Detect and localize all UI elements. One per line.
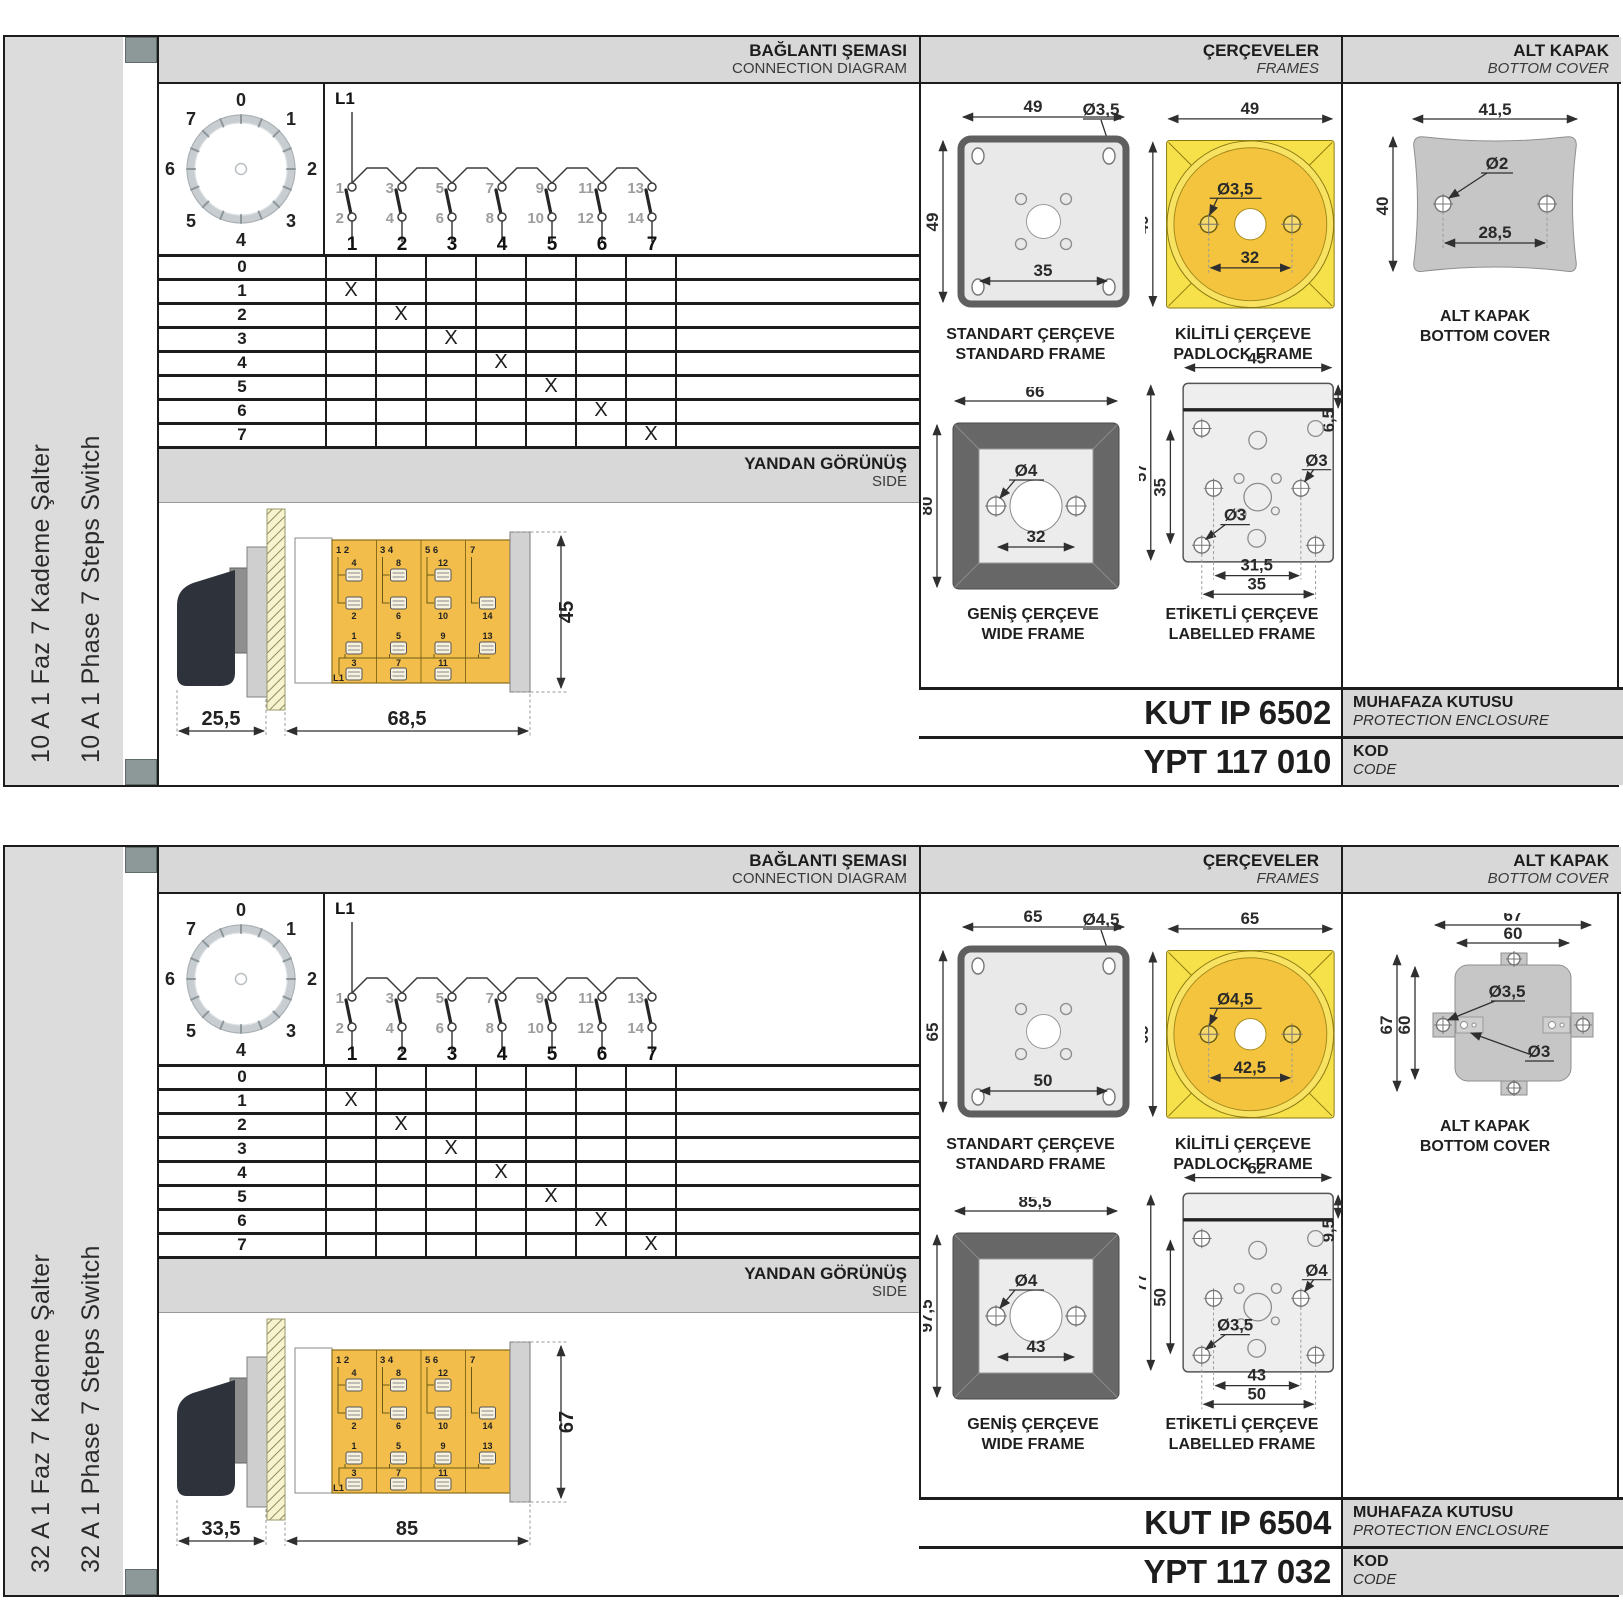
step-cell	[525, 1139, 575, 1160]
step-cell	[525, 305, 575, 326]
pole-number: 1	[347, 234, 358, 254]
step-cell	[525, 425, 575, 446]
step-cell	[325, 329, 375, 350]
terminal-number: 14	[482, 1421, 492, 1431]
product-code: YPT 117 010	[919, 739, 1341, 785]
step-cell	[425, 425, 475, 446]
terminal-number: 12	[438, 1368, 448, 1378]
terminal-number: 4	[386, 210, 395, 227]
dim-outer-height: 67	[1377, 1016, 1396, 1035]
dim-inner: 32	[1027, 527, 1046, 546]
product-title-tr: 10 A 1 Faz 7 Kademe Şalter	[27, 444, 56, 763]
step-cell-filler	[675, 1163, 919, 1184]
step-row-label: 3	[159, 329, 325, 350]
header-title-en: CONNECTION DIAGRAM	[159, 60, 907, 77]
table-row: 0	[159, 257, 919, 281]
step-cell	[425, 257, 475, 278]
enclosure-label: MUHAFAZA KUTUSU PROTECTION ENCLOSURE	[1341, 690, 1623, 736]
terminal-number: 9	[536, 180, 544, 197]
terminal-number: 11	[578, 990, 594, 1007]
table-row: 5X	[159, 377, 919, 401]
step-cell	[525, 401, 575, 422]
dial-position: 2	[307, 159, 317, 179]
dim-height: 49	[1145, 215, 1152, 234]
step-cell	[475, 425, 525, 446]
label-tr: MUHAFAZA KUTUSU	[1353, 1503, 1623, 1522]
wide-frame-drawing: 85,5 Ø4 97,5 43	[923, 1197, 1143, 1412]
step-cell	[325, 1211, 375, 1232]
dim-height: 40	[1373, 197, 1392, 216]
step-cell-filler	[675, 401, 919, 422]
terminal-number: 8	[396, 1368, 401, 1378]
mounting-plate	[267, 1319, 285, 1520]
header-title-tr: ÇERÇEVELER	[921, 41, 1319, 60]
step-cell	[625, 305, 675, 326]
dim-inner-width: 31,5	[1241, 556, 1273, 575]
terminal-number: 4	[351, 558, 356, 568]
step-cell	[525, 329, 575, 350]
table-row: 3X	[159, 1139, 919, 1163]
terminal-number: 9	[440, 1441, 445, 1451]
step-cell	[525, 1163, 575, 1184]
labelled-frame-drawing: 45 6,5 Ø3 Ø3 57 35 31,5 35	[1139, 353, 1345, 605]
bottom-cover-drawing: 67 60 67 60 Ø3,5 Ø3	[1355, 913, 1615, 1113]
terminal-number: 1	[336, 990, 344, 1007]
step-cell: X	[575, 1211, 625, 1232]
step-cell	[375, 281, 425, 302]
connection-diagram-header: BAĞLANTI ŞEMASI CONNECTION DIAGRAM	[157, 37, 919, 84]
step-cell	[425, 1235, 475, 1256]
terminal-number: 14	[627, 1020, 644, 1037]
dial-position: 2	[307, 969, 317, 989]
step-cell	[575, 257, 625, 278]
terminal-number: 1	[336, 180, 344, 197]
step-cell	[625, 401, 675, 422]
dial-position: 1	[286, 109, 296, 129]
terminal-number: 5	[396, 631, 401, 641]
dim-width: 65	[1024, 909, 1043, 926]
code-label: KOD CODE	[1341, 1549, 1623, 1595]
step-row-label: 1	[159, 1091, 325, 1112]
label-en: CODE	[1353, 761, 1623, 779]
line-label: L1	[333, 1483, 345, 1494]
step-cell	[425, 1091, 475, 1112]
side-view-drawing: 1 2 3 4 5 6 7 4 8 12 2 6 10 14 1 5 9 13 …	[159, 1313, 921, 1593]
pole-number: 5	[547, 234, 558, 254]
body-corner-label: 7	[470, 1355, 475, 1366]
pole-number: 2	[397, 234, 408, 254]
dim-hole: Ø3,5	[1217, 179, 1253, 198]
product-title-tr: 32 A 1 Faz 7 Kademe Şalter	[27, 1254, 56, 1573]
terminal-number: 10	[438, 611, 448, 621]
step-cell	[625, 1211, 675, 1232]
terminal-number: 2	[351, 1421, 356, 1431]
step-row-label: 2	[159, 305, 325, 326]
step-cell	[625, 257, 675, 278]
terminal-number: 2	[336, 1020, 344, 1037]
step-cell	[475, 1091, 525, 1112]
frame-caption: GENİŞ ÇERÇEVE WIDE FRAME	[923, 605, 1143, 645]
dial-position: 6	[165, 159, 175, 179]
step-cell	[575, 1067, 625, 1088]
caption-tr: ETİKETLİ ÇERÇEVE	[1166, 606, 1319, 623]
step-cell	[425, 401, 475, 422]
contact-schematic-cell: L1 1 3 5 7 9 11 13 2	[325, 84, 921, 254]
table-row: 6X	[159, 1211, 919, 1235]
header-title-en: SIDE	[159, 473, 907, 490]
pole-number: 3	[447, 234, 458, 254]
table-row: 1X	[159, 281, 919, 305]
terminal-number: 3	[386, 180, 394, 197]
dim-width: 85,5	[1018, 1197, 1051, 1211]
terminal-number: 12	[438, 558, 448, 568]
dial-position: 7	[186, 109, 196, 129]
header-title-tr: ÇERÇEVELER	[921, 851, 1319, 870]
step-cell: X	[325, 281, 375, 302]
caption-en: LABELLED FRAME	[1169, 1436, 1316, 1453]
dial-position: 6	[165, 969, 175, 989]
step-cell	[575, 281, 625, 302]
terminal-number: 13	[627, 990, 644, 1007]
corner-marker	[125, 1569, 157, 1595]
step-cell	[475, 305, 525, 326]
pole-number: 5	[547, 1044, 558, 1064]
frame-caption: STANDART ÇERÇEVE STANDARD FRAME	[923, 1135, 1138, 1175]
step-cell-filler	[675, 257, 919, 278]
step-cell	[575, 329, 625, 350]
connection-diagram-header: BAĞLANTI ŞEMASI CONNECTION DIAGRAM	[157, 847, 919, 894]
step-cell	[325, 1067, 375, 1088]
dial-position: 5	[186, 211, 196, 231]
cover-caption: ALT KAPAK BOTTOM COVER	[1355, 307, 1615, 347]
step-cell	[575, 1187, 625, 1208]
dim-hole-upper: Ø3	[1305, 451, 1327, 470]
terminal-number: 8	[396, 558, 401, 568]
frame-caption: ETİKETLİ ÇERÇEVE LABELLED FRAME	[1139, 1415, 1345, 1455]
header-title-tr: YANDAN GÖRÜNÜŞ	[159, 1264, 907, 1283]
label-en: PROTECTION ENCLOSURE	[1353, 1522, 1623, 1540]
dim-height: 65	[1145, 1025, 1152, 1044]
step-row-label: 4	[159, 353, 325, 374]
side-view-drawing: 1 2 3 4 5 6 7 4 8 12 2 6 10 14 1 5 9 13 …	[159, 503, 921, 783]
dial-position: 0	[236, 90, 246, 110]
enclosure-code: KUT IP 6502	[919, 690, 1341, 736]
dim-inner-height: 50	[1150, 1288, 1169, 1307]
terminal-number: 3	[351, 658, 356, 668]
wide-frame-drawing: 66 Ø4 80 32	[923, 387, 1143, 602]
side-view-header: YANDAN GÖRÜNÜŞ SIDE	[159, 449, 919, 503]
dim-strip: 9,5	[1319, 1219, 1338, 1242]
dim-width: 62	[1247, 1163, 1266, 1178]
step-cell-filler	[675, 1067, 919, 1088]
caption-tr: ALT KAPAK	[1440, 1118, 1530, 1135]
section-10a-switch: 10 A 1 Faz 7 Kademe Şalter 10 A 1 Phase …	[3, 35, 1619, 787]
switch-dial-cell: 0 1 2 3 4 5 6 7	[159, 84, 325, 254]
terminal-number: 7	[486, 990, 494, 1007]
terminal-number: 3	[386, 990, 394, 1007]
table-row: 4X	[159, 353, 919, 377]
step-cell	[575, 353, 625, 374]
step-cell	[625, 1067, 675, 1088]
pole-number: 7	[647, 1044, 658, 1064]
bottom-cover-drawing: 41,5 40 Ø2 28,5	[1355, 103, 1615, 303]
step-cell	[375, 329, 425, 350]
body-corner-label: 5 6	[425, 545, 438, 556]
step-cell	[525, 1235, 575, 1256]
dim-width: 65	[1241, 909, 1260, 928]
step-cell	[625, 1187, 675, 1208]
dim-height: 45	[556, 601, 578, 623]
dial-position: 7	[186, 919, 196, 939]
enclosure-code-row: KUT IP 6504 MUHAFAZA KUTUSU PROTECTION E…	[919, 1497, 1623, 1546]
header-title-en: BOTTOM COVER	[1343, 870, 1609, 887]
step-cell	[475, 1115, 525, 1136]
terminal-number: 12	[577, 210, 594, 227]
terminal-number: 6	[436, 1020, 444, 1037]
table-row: 7X	[159, 425, 919, 449]
terminal-number: 13	[482, 631, 492, 641]
step-cell: X	[575, 401, 625, 422]
step-cell	[625, 281, 675, 302]
step-cell: X	[475, 1163, 525, 1184]
dim-hole: Ø4,5	[1217, 989, 1253, 1008]
terminal-number: 1	[351, 631, 356, 641]
header-title-en: SIDE	[159, 1283, 907, 1300]
step-row-label: 0	[159, 1067, 325, 1088]
step-cell	[575, 1235, 625, 1256]
step-cell	[575, 305, 625, 326]
dim-width: 66	[1026, 387, 1045, 401]
pole-number: 6	[597, 1044, 608, 1064]
step-cell	[425, 1115, 475, 1136]
connection-schematic: L1 1 3 5 7 9 11 13 2	[325, 894, 921, 1064]
terminal-number: 4	[351, 1368, 356, 1378]
step-cell-filler	[675, 281, 919, 302]
table-row: 4X	[159, 1163, 919, 1187]
caption-tr: KİLİTLİ ÇERÇEVE	[1175, 326, 1311, 343]
terminal-number: 11	[438, 1468, 448, 1478]
terminal-number: 7	[486, 180, 494, 197]
step-row-label: 5	[159, 377, 325, 398]
step-cell	[625, 1115, 675, 1136]
dim-height: 77	[1139, 1273, 1150, 1292]
label-tr: MUHAFAZA KUTUSU	[1353, 693, 1623, 712]
step-cell	[375, 1139, 425, 1160]
product-code-row: YPT 117 032 KOD CODE	[919, 1546, 1623, 1595]
dim-height: 49	[923, 213, 942, 232]
dim-width: 45	[1247, 353, 1266, 368]
table-row: 3X	[159, 329, 919, 353]
dim-inner-width: 43	[1247, 1366, 1266, 1385]
padlock-frame-drawing: 65 Ø4,5 65 42,5	[1145, 909, 1341, 1134]
step-cell	[475, 329, 525, 350]
caption-en: STANDARD FRAME	[956, 1156, 1106, 1173]
standard-frame-drawing: 65 Ø4,5 65 50	[923, 909, 1138, 1134]
step-cell	[475, 377, 525, 398]
dim-height: 97,5	[923, 1299, 936, 1332]
step-cell	[525, 1115, 575, 1136]
product-title-en: 32 A 1 Phase 7 Steps Switch	[77, 1245, 106, 1573]
frame-caption: STANDART ÇERÇEVE STANDARD FRAME	[923, 325, 1138, 365]
step-cell	[475, 1139, 525, 1160]
step-cell	[375, 257, 425, 278]
dim-hole: Ø4,5	[1083, 910, 1120, 929]
step-cell	[625, 329, 675, 350]
step-row-label: 7	[159, 1235, 325, 1256]
step-cell	[425, 1187, 475, 1208]
step-cell	[425, 1211, 475, 1232]
terminal-number: 14	[627, 210, 644, 227]
step-cell	[525, 281, 575, 302]
line-label: L1	[333, 673, 345, 684]
step-cell	[375, 1211, 425, 1232]
header-title-en: BOTTOM COVER	[1343, 60, 1609, 77]
step-cell	[575, 377, 625, 398]
dim-outer-width: 50	[1247, 1384, 1266, 1403]
step-cell	[375, 1091, 425, 1112]
caption-tr: KİLİTLİ ÇERÇEVE	[1175, 1136, 1311, 1153]
label-en: CODE	[1353, 1571, 1623, 1589]
caption-tr: GENİŞ ÇERÇEVE	[967, 606, 1099, 623]
body-corner-label: 7	[470, 545, 475, 556]
caption-en: WIDE FRAME	[981, 626, 1084, 643]
standard-frame-drawing: 49 Ø3,5 49 35	[923, 99, 1138, 324]
pole-number: 6	[597, 234, 608, 254]
frames-header: ÇERÇEVELER FRAMES	[919, 847, 1341, 894]
body-corner-label: 5 6	[425, 1355, 438, 1366]
terminal-number: 14	[482, 611, 492, 621]
step-cell: X	[475, 353, 525, 374]
header-title-tr: BAĞLANTI ŞEMASI	[159, 851, 907, 870]
terminal-number: 3	[351, 1468, 356, 1478]
caption-tr: STANDART ÇERÇEVE	[946, 1136, 1115, 1153]
step-cell	[475, 1067, 525, 1088]
caption-en: LABELLED FRAME	[1169, 626, 1316, 643]
pole-number: 1	[347, 1044, 358, 1064]
step-row-label: 7	[159, 425, 325, 446]
step-cell-filler	[675, 1211, 919, 1232]
table-row: 6X	[159, 401, 919, 425]
table-row: 1X	[159, 1091, 919, 1115]
terminal-number: 9	[440, 631, 445, 641]
step-cell	[625, 377, 675, 398]
step-cell	[475, 1235, 525, 1256]
product-sidebar: 32 A 1 Faz 7 Kademe Şalter 32 A 1 Phase …	[5, 847, 123, 1595]
step-row-label: 0	[159, 257, 325, 278]
caption-en: WIDE FRAME	[981, 1436, 1084, 1453]
corner-marker	[125, 847, 157, 873]
step-cell	[375, 401, 425, 422]
dial-drawing: 0 1 2 3 4 5 6 7	[159, 84, 323, 254]
step-cell	[575, 1091, 625, 1112]
step-cell	[625, 1163, 675, 1184]
step-cell	[375, 353, 425, 374]
step-row-label: 3	[159, 1139, 325, 1160]
dial-position: 3	[286, 1021, 296, 1041]
corner-marker	[125, 759, 157, 785]
table-row: 5X	[159, 1187, 919, 1211]
step-cell	[575, 1163, 625, 1184]
step-cell	[625, 1139, 675, 1160]
dim-body: 68,5	[388, 708, 427, 730]
caption-tr: ETİKETLİ ÇERÇEVE	[1166, 1416, 1319, 1433]
labelled-frame-drawing: 62 9,5 Ø4 Ø3,5 77 50 43 50	[1139, 1163, 1345, 1415]
pole-number: 4	[497, 1044, 508, 1064]
product-code-row: YPT 117 010 KOD CODE	[919, 736, 1623, 785]
dim-hole: Ø3,5	[1083, 100, 1120, 119]
step-cell	[425, 305, 475, 326]
pole-number: 3	[447, 1044, 458, 1064]
switch-dial-cell: 0 1 2 3 4 5 6 7	[159, 894, 325, 1064]
step-cell-filler	[675, 1235, 919, 1256]
label-tr: KOD	[1353, 1552, 1623, 1571]
step-cell	[375, 1235, 425, 1256]
step-cell	[475, 1187, 525, 1208]
step-cell	[425, 1163, 475, 1184]
dim-height: 57	[1139, 463, 1150, 482]
step-cell	[325, 377, 375, 398]
header-title-tr: YANDAN GÖRÜNÜŞ	[159, 454, 907, 473]
dial-position: 0	[236, 900, 246, 920]
dim-inner: 32	[1241, 248, 1260, 267]
terminal-number: 2	[351, 611, 356, 621]
step-cell	[325, 401, 375, 422]
step-row-label: 4	[159, 1163, 325, 1184]
frame-caption: ETİKETLİ ÇERÇEVE LABELLED FRAME	[1139, 605, 1345, 645]
step-cell	[425, 281, 475, 302]
header-title-tr: BAĞLANTI ŞEMASI	[159, 41, 907, 60]
dial-position: 5	[186, 1021, 196, 1041]
step-cell	[525, 257, 575, 278]
body-corner-label: 1 2	[336, 545, 349, 556]
label-tr: KOD	[1353, 742, 1623, 761]
dim-inner-height: 60	[1395, 1016, 1414, 1035]
dim-hole-small: Ø3	[1528, 1042, 1551, 1061]
body-corner-label: 1 2	[336, 1355, 349, 1366]
terminal-number: 9	[536, 990, 544, 1007]
caption-en: BOTTOM COVER	[1420, 1138, 1550, 1155]
dim-inner: 42,5	[1234, 1058, 1266, 1077]
enclosure-code: KUT IP 6504	[919, 1500, 1341, 1546]
dim-hole-upper: Ø4	[1305, 1261, 1328, 1280]
terminal-number: 7	[396, 658, 401, 668]
step-cell: X	[525, 1187, 575, 1208]
code-label: KOD CODE	[1341, 739, 1623, 785]
dial-position: 4	[236, 1040, 246, 1060]
section-32a-switch: 32 A 1 Faz 7 Kademe Şalter 32 A 1 Phase …	[3, 845, 1619, 1597]
switching-table: 0 1X 2X 3X 4X 5X 6X 7X	[159, 254, 919, 449]
step-cell	[425, 377, 475, 398]
step-cell	[325, 1115, 375, 1136]
dim-inner-width: 60	[1504, 924, 1523, 943]
connection-schematic: L1 1 3 5 7 9 11 13 2	[325, 84, 921, 254]
step-cell	[475, 257, 525, 278]
step-cell	[375, 1163, 425, 1184]
dim-strip: 6,5	[1319, 409, 1338, 432]
dim-inner-height: 35	[1150, 478, 1169, 497]
step-cell-filler	[675, 377, 919, 398]
step-cell-filler	[675, 329, 919, 350]
pole-number: 4	[497, 234, 508, 254]
dim-hole-lower: Ø3,5	[1217, 1316, 1253, 1335]
bottom-cover-header: ALT KAPAK BOTTOM COVER	[1341, 37, 1621, 84]
step-cell	[525, 1067, 575, 1088]
dim-hole-lower: Ø3	[1224, 506, 1246, 525]
table-row: 2X	[159, 305, 919, 329]
terminal-number: 11	[578, 180, 594, 197]
step-cell	[425, 1067, 475, 1088]
terminal-number: 5	[436, 180, 444, 197]
